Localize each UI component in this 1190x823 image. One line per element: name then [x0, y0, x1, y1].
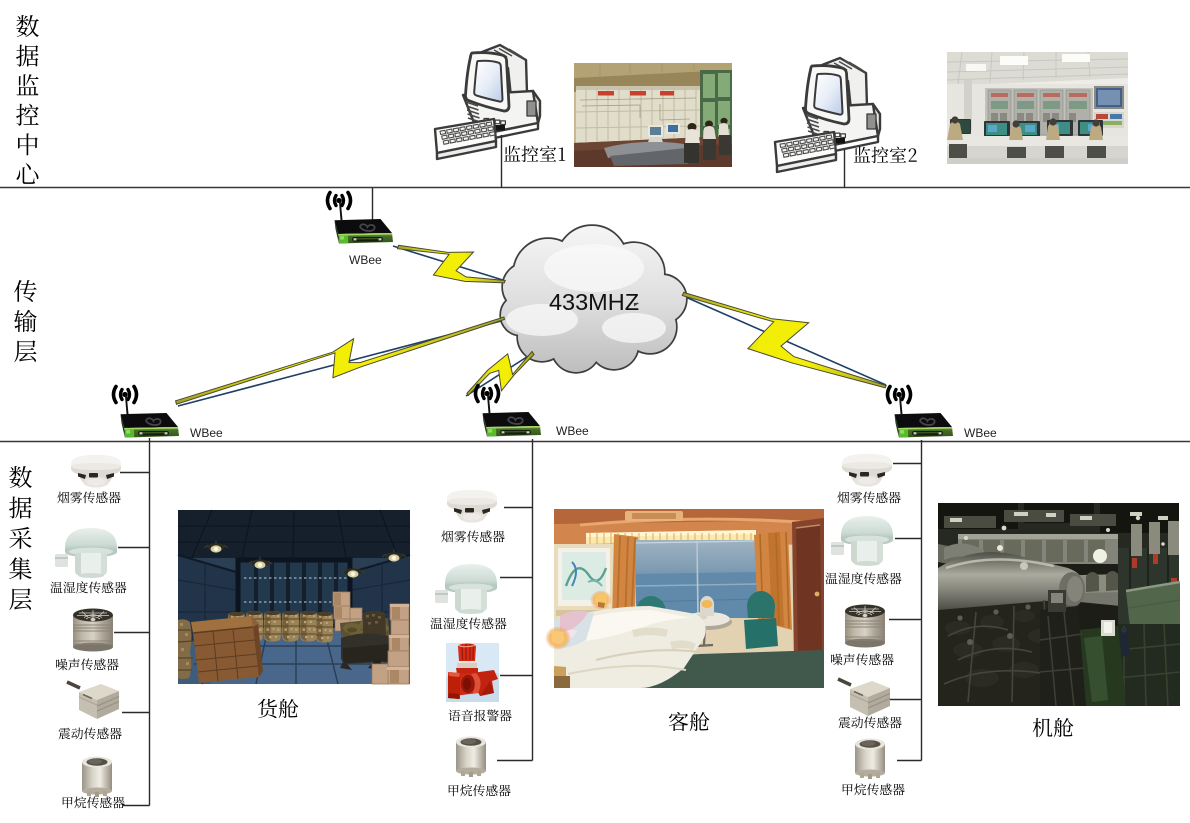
svg-text:433MHZ: 433MHZ: [549, 289, 639, 315]
svg-text:WBee: WBee: [964, 426, 997, 440]
svg-text:WBee: WBee: [190, 426, 223, 440]
svg-text:WBee: WBee: [349, 253, 382, 267]
svg-text:WBee: WBee: [556, 424, 589, 438]
